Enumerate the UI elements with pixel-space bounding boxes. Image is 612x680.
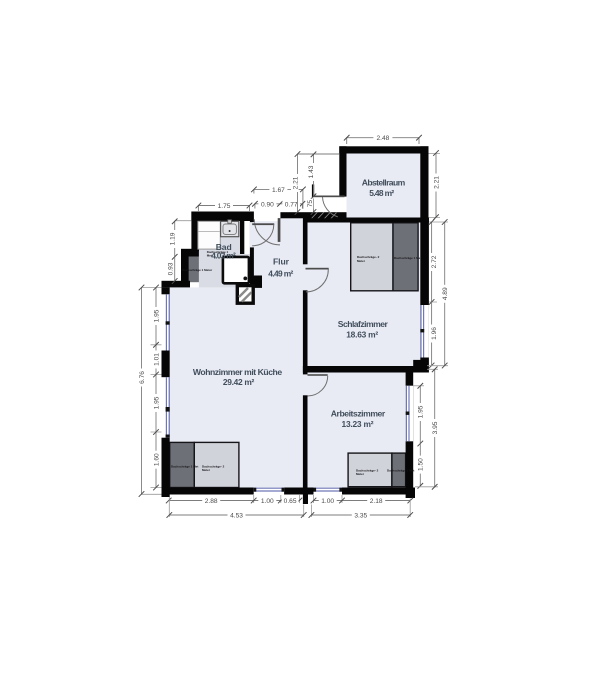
svg-text:4.89: 4.89 <box>442 287 449 300</box>
svg-text:1.00: 1.00 <box>261 498 274 505</box>
svg-text:2.48: 2.48 <box>376 135 389 142</box>
svg-text:1.01: 1.01 <box>153 353 160 366</box>
svg-text:3.95: 3.95 <box>432 421 439 434</box>
svg-text:1.50: 1.50 <box>418 458 425 471</box>
svg-text:Flur: Flur <box>273 257 290 267</box>
svg-text:1.00: 1.00 <box>321 498 334 505</box>
svg-text:Meter: Meter <box>202 468 211 472</box>
svg-text:Arbeitszimmer: Arbeitszimmer <box>331 409 386 419</box>
svg-text:Dachschräge 1 Meter: Dachschräge 1 Meter <box>182 268 213 272</box>
svg-text:0.93: 0.93 <box>168 262 175 275</box>
svg-text:1.60: 1.60 <box>153 453 160 466</box>
svg-text:Dachschräge 1 Met: Dachschräge 1 Met <box>387 469 414 473</box>
svg-text:0.77: 0.77 <box>285 201 298 208</box>
svg-text:4.53: 4.53 <box>230 513 243 520</box>
svg-text:1.43: 1.43 <box>308 165 315 178</box>
svg-text:Dachschräge 1 Met: Dachschräge 1 Met <box>171 465 198 469</box>
svg-text:Abstellraum: Abstellraum <box>362 177 406 187</box>
svg-text:0.65: 0.65 <box>284 498 297 505</box>
svg-text:1.96: 1.96 <box>431 327 438 340</box>
svg-text:Wohnzimmer mit Küche: Wohnzimmer mit Küche <box>193 367 282 377</box>
svg-text:Schlafzimmer: Schlafzimmer <box>338 319 389 329</box>
svg-text:29.42 m²: 29.42 m² <box>223 377 255 387</box>
svg-text:2.21: 2.21 <box>292 176 299 189</box>
svg-text:Meter: Meter <box>356 472 365 476</box>
svg-text:3.35: 3.35 <box>354 513 367 520</box>
svg-text:Dachschräge 1 Met: Dachschräge 1 Met <box>394 256 421 260</box>
svg-text:1.95: 1.95 <box>153 396 160 409</box>
svg-text:4.49 m²: 4.49 m² <box>268 268 293 278</box>
svg-text:2.88: 2.88 <box>205 498 218 505</box>
svg-text:75: 75 <box>307 200 314 208</box>
svg-text:2.21: 2.21 <box>433 176 440 189</box>
svg-text:Met: Met <box>207 254 212 258</box>
svg-text:5.48 m²: 5.48 m² <box>369 188 394 198</box>
svg-text:2.72: 2.72 <box>431 255 438 268</box>
svg-text:13.23 m²: 13.23 m² <box>342 419 374 429</box>
svg-text:18.63 m²: 18.63 m² <box>346 330 378 340</box>
svg-text:2.18: 2.18 <box>370 498 383 505</box>
svg-text:Meter: Meter <box>357 259 366 263</box>
svg-text:1.67: 1.67 <box>272 187 285 194</box>
svg-text:1.95: 1.95 <box>418 405 425 418</box>
svg-text:1.75: 1.75 <box>218 203 231 210</box>
svg-text:6.76: 6.76 <box>139 371 146 384</box>
svg-text:1.95: 1.95 <box>153 309 160 322</box>
svg-text:1.19: 1.19 <box>170 232 177 245</box>
svg-text:0.90: 0.90 <box>261 201 274 208</box>
